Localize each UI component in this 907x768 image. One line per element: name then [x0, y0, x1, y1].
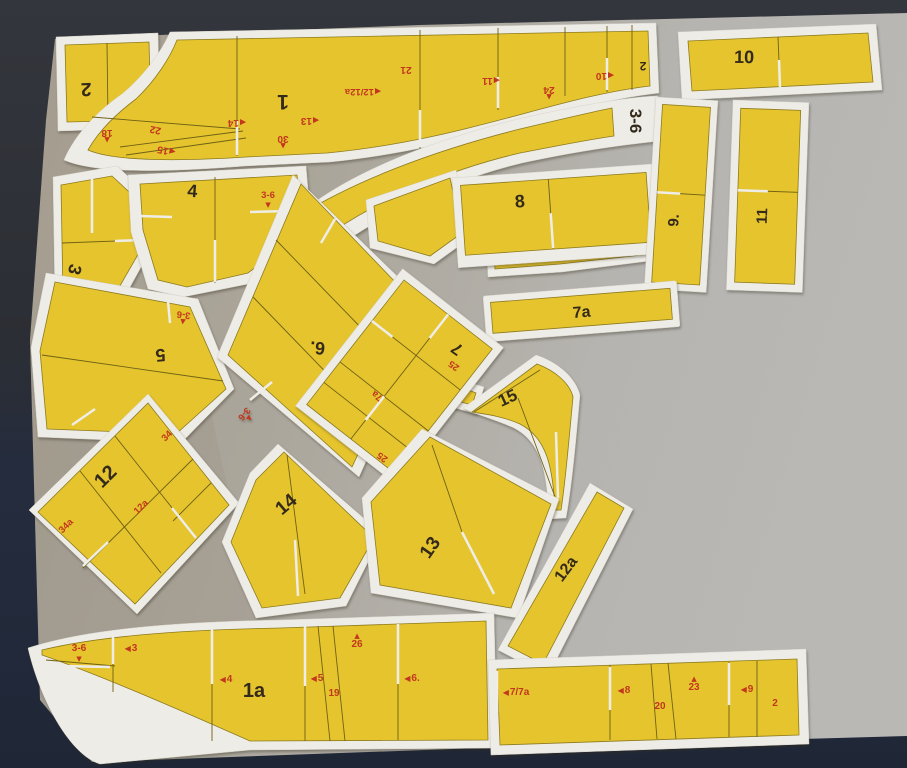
- marker-2: 2: [772, 698, 778, 709]
- marker-6: ◀6.: [404, 673, 420, 684]
- marker-9: ◀9: [741, 684, 754, 695]
- cutout-strip-bottom-right: ◀7/7a ◀8 20 23 ▲ ◀9 2: [488, 649, 809, 755]
- marker-12-12a: ◀12/12a: [344, 86, 381, 97]
- marker-7-7a: ◀7/7a: [503, 687, 530, 698]
- piece-7a-label: 7a: [572, 304, 591, 322]
- arrow-left-icon: ◀: [618, 686, 625, 695]
- arrow-left-icon: ◀: [311, 674, 318, 683]
- piece-3-6-label: 3-6: [626, 109, 645, 134]
- marker-5: ◀5: [311, 673, 324, 684]
- marker-14: ◀14: [227, 117, 246, 128]
- marker-3: ◀3: [125, 643, 138, 654]
- arrow-left-icon: ◀: [404, 674, 411, 683]
- photo-paper-model-parts: 2 1 2 18 ▲ 22 ◀15 ◀14 30 ▲ ◀13 ◀12/12a 2…: [0, 0, 907, 768]
- svg-text:3-6: 3-6: [261, 190, 275, 201]
- piece-1-corner-label: 2: [639, 59, 646, 73]
- marker-11: ◀11: [482, 75, 500, 86]
- marker-19: 19: [328, 688, 340, 699]
- svg-text:3-6: 3-6: [72, 643, 87, 654]
- arrow-left-icon: ◀: [493, 76, 500, 85]
- piece-2-label: 2: [81, 78, 92, 99]
- svg-text:23: 23: [688, 682, 700, 693]
- arrow-left-icon: ◀: [220, 675, 227, 684]
- arrow-left-icon: ◀: [607, 71, 614, 80]
- arrow-left-icon: ◀: [503, 688, 510, 697]
- arrow-left-icon: ◀: [239, 118, 246, 127]
- cutout-piece-10: 10: [678, 24, 882, 100]
- piece-9-label: 9.: [665, 214, 683, 228]
- piece-1a-label: 1a: [243, 680, 266, 702]
- arrow-icon: ▼: [76, 655, 82, 663]
- cutout-piece-9: 9.: [644, 97, 718, 292]
- marker-10: ◀10: [595, 70, 614, 81]
- arrow-icon: ▲: [354, 632, 360, 640]
- piece-10-label: 10: [734, 47, 754, 67]
- arrow-left-icon: ◀: [125, 644, 132, 653]
- piece-4-label: 4: [187, 181, 198, 202]
- marker-21: 21: [400, 64, 412, 75]
- cutout-piece-11: 11: [726, 100, 809, 293]
- scene: 2 1 2 18 ▲ 22 ◀15 ◀14 30 ▲ ◀13 ◀12/12a 2…: [0, 0, 907, 768]
- arrow-icon: ▲: [546, 93, 552, 101]
- cutout-piece-1a: 1a 3-6 ▼ ◀3 ◀4 ◀5 19 26 ▲ ◀6.: [28, 613, 497, 764]
- marker-13: ◀13: [300, 115, 319, 126]
- svg-text:26: 26: [351, 639, 363, 650]
- arrow-icon: ▲: [280, 142, 286, 150]
- arrow-left-icon: ◀: [312, 116, 319, 125]
- arrow-left-icon: ◀: [374, 87, 381, 96]
- marker-8: ◀8: [618, 685, 631, 696]
- piece-5-label: 5: [155, 345, 167, 366]
- arrow-icon: ▼: [265, 201, 271, 209]
- cutout-piece-8: 8: [452, 164, 660, 268]
- piece-6-label: 6.: [309, 337, 326, 358]
- piece-11-label: 11: [754, 208, 772, 224]
- marker-4: ◀4: [220, 674, 233, 685]
- arrow-icon: ▲: [691, 675, 697, 683]
- arrow-icon: ▲: [104, 136, 110, 144]
- arrow-left-icon: ◀: [741, 685, 748, 694]
- piece-8-label: 8: [514, 191, 525, 212]
- marker-20: 20: [654, 701, 666, 712]
- piece-1-label: 1: [277, 90, 289, 113]
